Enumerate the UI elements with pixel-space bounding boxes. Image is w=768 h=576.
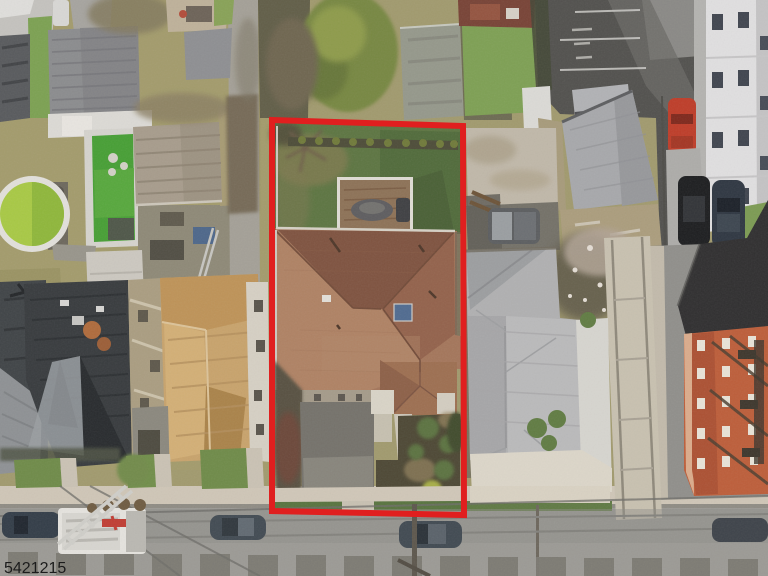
svg-text:5421215: 5421215 — [4, 560, 66, 576]
